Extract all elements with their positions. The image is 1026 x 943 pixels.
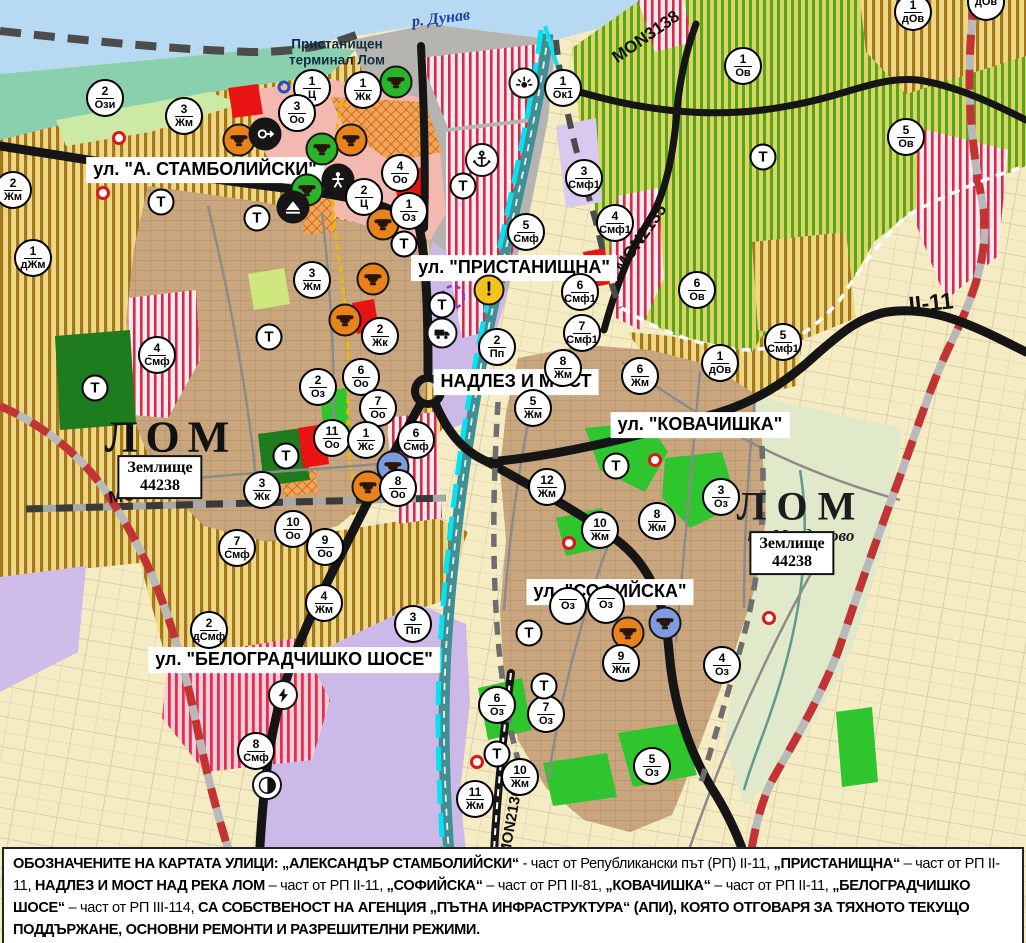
zone-marker-3-Жм: 3Жм <box>165 97 203 135</box>
zone-marker-6-Жм: 6Жм <box>621 357 659 395</box>
t-marker: Т <box>391 231 418 258</box>
zone-marker-9-Оо: 9Оо <box>306 528 344 566</box>
zone-marker-3-Оз: 3Оз <box>702 478 740 516</box>
t-marker: Т <box>273 443 300 470</box>
road-ownership-note: ОБОЗНАЧЕНИТЕ НА КАРТАТА УЛИЦИ: „АЛЕКСАНД… <box>2 847 1024 943</box>
t-marker: Т <box>484 741 511 768</box>
zone-marker-8-Жм: 8Жм <box>544 349 582 387</box>
t-marker: Т <box>429 292 456 319</box>
zoning-map-canvas[interactable]: р. ДунавПристанищентерминал ЛомЛОМMON313… <box>0 0 1026 943</box>
zone-marker-1-Жк: 1Жк <box>344 71 382 109</box>
zone-marker-5-Ов: 5Ов <box>887 118 925 156</box>
note-text-segment: – част от РП II-81, <box>483 878 606 894</box>
note-text-segment: „СОФИЙСКА“ <box>387 878 483 894</box>
zone-marker-11-Оо: 11Оо <box>313 419 351 457</box>
zone-marker-7-Смф: 7Смф <box>218 529 256 567</box>
zone-marker-3-Жк: 3Жк <box>243 471 281 509</box>
t-marker: Т <box>531 673 558 700</box>
zone-marker-5-Жм: 5Жм <box>514 389 552 427</box>
zone-marker-8-Жм: 8Жм <box>638 502 676 540</box>
zone-marker-2-Жм: 2Жм <box>0 171 32 209</box>
zone-marker-11-Жм: 11Жм <box>456 780 494 818</box>
t-marker: Т <box>516 620 543 647</box>
zone-marker-6-Смф: 6Смф <box>397 421 435 459</box>
zone-marker-Оз: Оз <box>587 586 625 624</box>
zone-marker-1-Ок1: 1Ок1 <box>544 69 582 107</box>
zone-marker-5-Смф: 5Смф <box>507 213 545 251</box>
zone-marker-2-Жк: 2Жк <box>361 317 399 355</box>
zone-marker-7-Оз: 7Оз <box>527 695 565 733</box>
zone-marker-1-дОв: 1дОв <box>701 344 739 382</box>
zone-markers-layer: 2Ози1Ц3Оо1Жк3Жм2Жм1дЖм4Оо2Ц1Оз1Ок13Смф15… <box>0 0 1026 943</box>
zone-marker-5-Смф1: 5Смф1 <box>764 323 802 361</box>
zone-marker-2-Ози: 2Ози <box>86 79 124 117</box>
t-marker: Т <box>603 453 630 480</box>
zone-marker-6-Ов: 6Ов <box>678 271 716 309</box>
note-text-segment: - част от Републикански път (РП) II-11, <box>519 856 774 872</box>
zone-marker-3-Оо: 3Оо <box>278 94 316 132</box>
zone-marker-дОв: дОв <box>967 0 1005 21</box>
zone-marker-7-Смф1: 7Смф1 <box>563 314 601 352</box>
zone-marker-8-Смф: 8Смф <box>237 732 275 770</box>
zone-marker-6-Смф1: 6Смф1 <box>561 273 599 311</box>
zone-marker-2-Оз: 2Оз <box>299 368 337 406</box>
zone-marker-3-Жм: 3Жм <box>293 261 331 299</box>
zone-marker-10-Жм: 10Жм <box>581 511 619 549</box>
zone-marker-3-Смф1: 3Смф1 <box>565 159 603 197</box>
zone-marker-4-Оз: 4Оз <box>703 646 741 684</box>
zone-marker-2-дСмф: 2дСмф <box>190 611 228 649</box>
zone-marker-6-Оз: 6Оз <box>478 686 516 724</box>
note-text-segment: „ПРИСТАНИЩНА“ <box>774 856 900 872</box>
t-marker: Т <box>750 144 777 171</box>
note-text-segment: – част от РП III-114, <box>65 900 198 916</box>
zone-marker-5-Оз: 5Оз <box>633 747 671 785</box>
zone-marker-1-Оз: 1Оз <box>390 192 428 230</box>
note-text-segment: „КОВАЧИШКА“ <box>605 878 710 894</box>
t-marker: Т <box>82 375 109 402</box>
note-text-segment: ОБОЗНАЧЕНИТЕ НА КАРТАТА УЛИЦИ: „АЛЕКСАНД… <box>13 856 519 872</box>
zone-marker-4-Жм: 4Жм <box>305 584 343 622</box>
zone-marker-4-Смф: 4Смф <box>138 336 176 374</box>
zone-marker-Оз: Оз <box>549 587 587 625</box>
zone-marker-1-дОв: 1дОв <box>894 0 932 31</box>
note-text-segment: НАДЛЕЗ И МОСТ НАД РЕКА ЛОМ <box>35 878 265 894</box>
zone-marker-3-Пп: 3Пп <box>394 605 432 643</box>
zone-marker-1-дЖм: 1дЖм <box>14 239 52 277</box>
zone-marker-2-Ц: 2Ц <box>345 178 383 216</box>
t-marker: Т <box>148 189 175 216</box>
zone-marker-2-Пп: 2Пп <box>478 328 516 366</box>
zone-marker-9-Жм: 9Жм <box>602 644 640 682</box>
note-text-segment: – част от РП II-11, <box>265 878 387 894</box>
note-text-segment: – част от РП II-11, <box>711 878 833 894</box>
zone-marker-1-Жс: 1Жс <box>347 421 385 459</box>
zone-marker-12-Жм: 12Жм <box>528 468 566 506</box>
zone-marker-1-Ов: 1Ов <box>724 47 762 85</box>
t-marker: Т <box>244 205 271 232</box>
t-marker: Т <box>256 324 283 351</box>
zone-marker-4-Смф1: 4Смф1 <box>596 204 634 242</box>
t-marker: Т <box>450 173 477 200</box>
zone-marker-4-Оо: 4Оо <box>381 154 419 192</box>
zone-marker-8-Оо: 8Оо <box>379 469 417 507</box>
zone-marker-10-Жм: 10Жм <box>501 758 539 796</box>
